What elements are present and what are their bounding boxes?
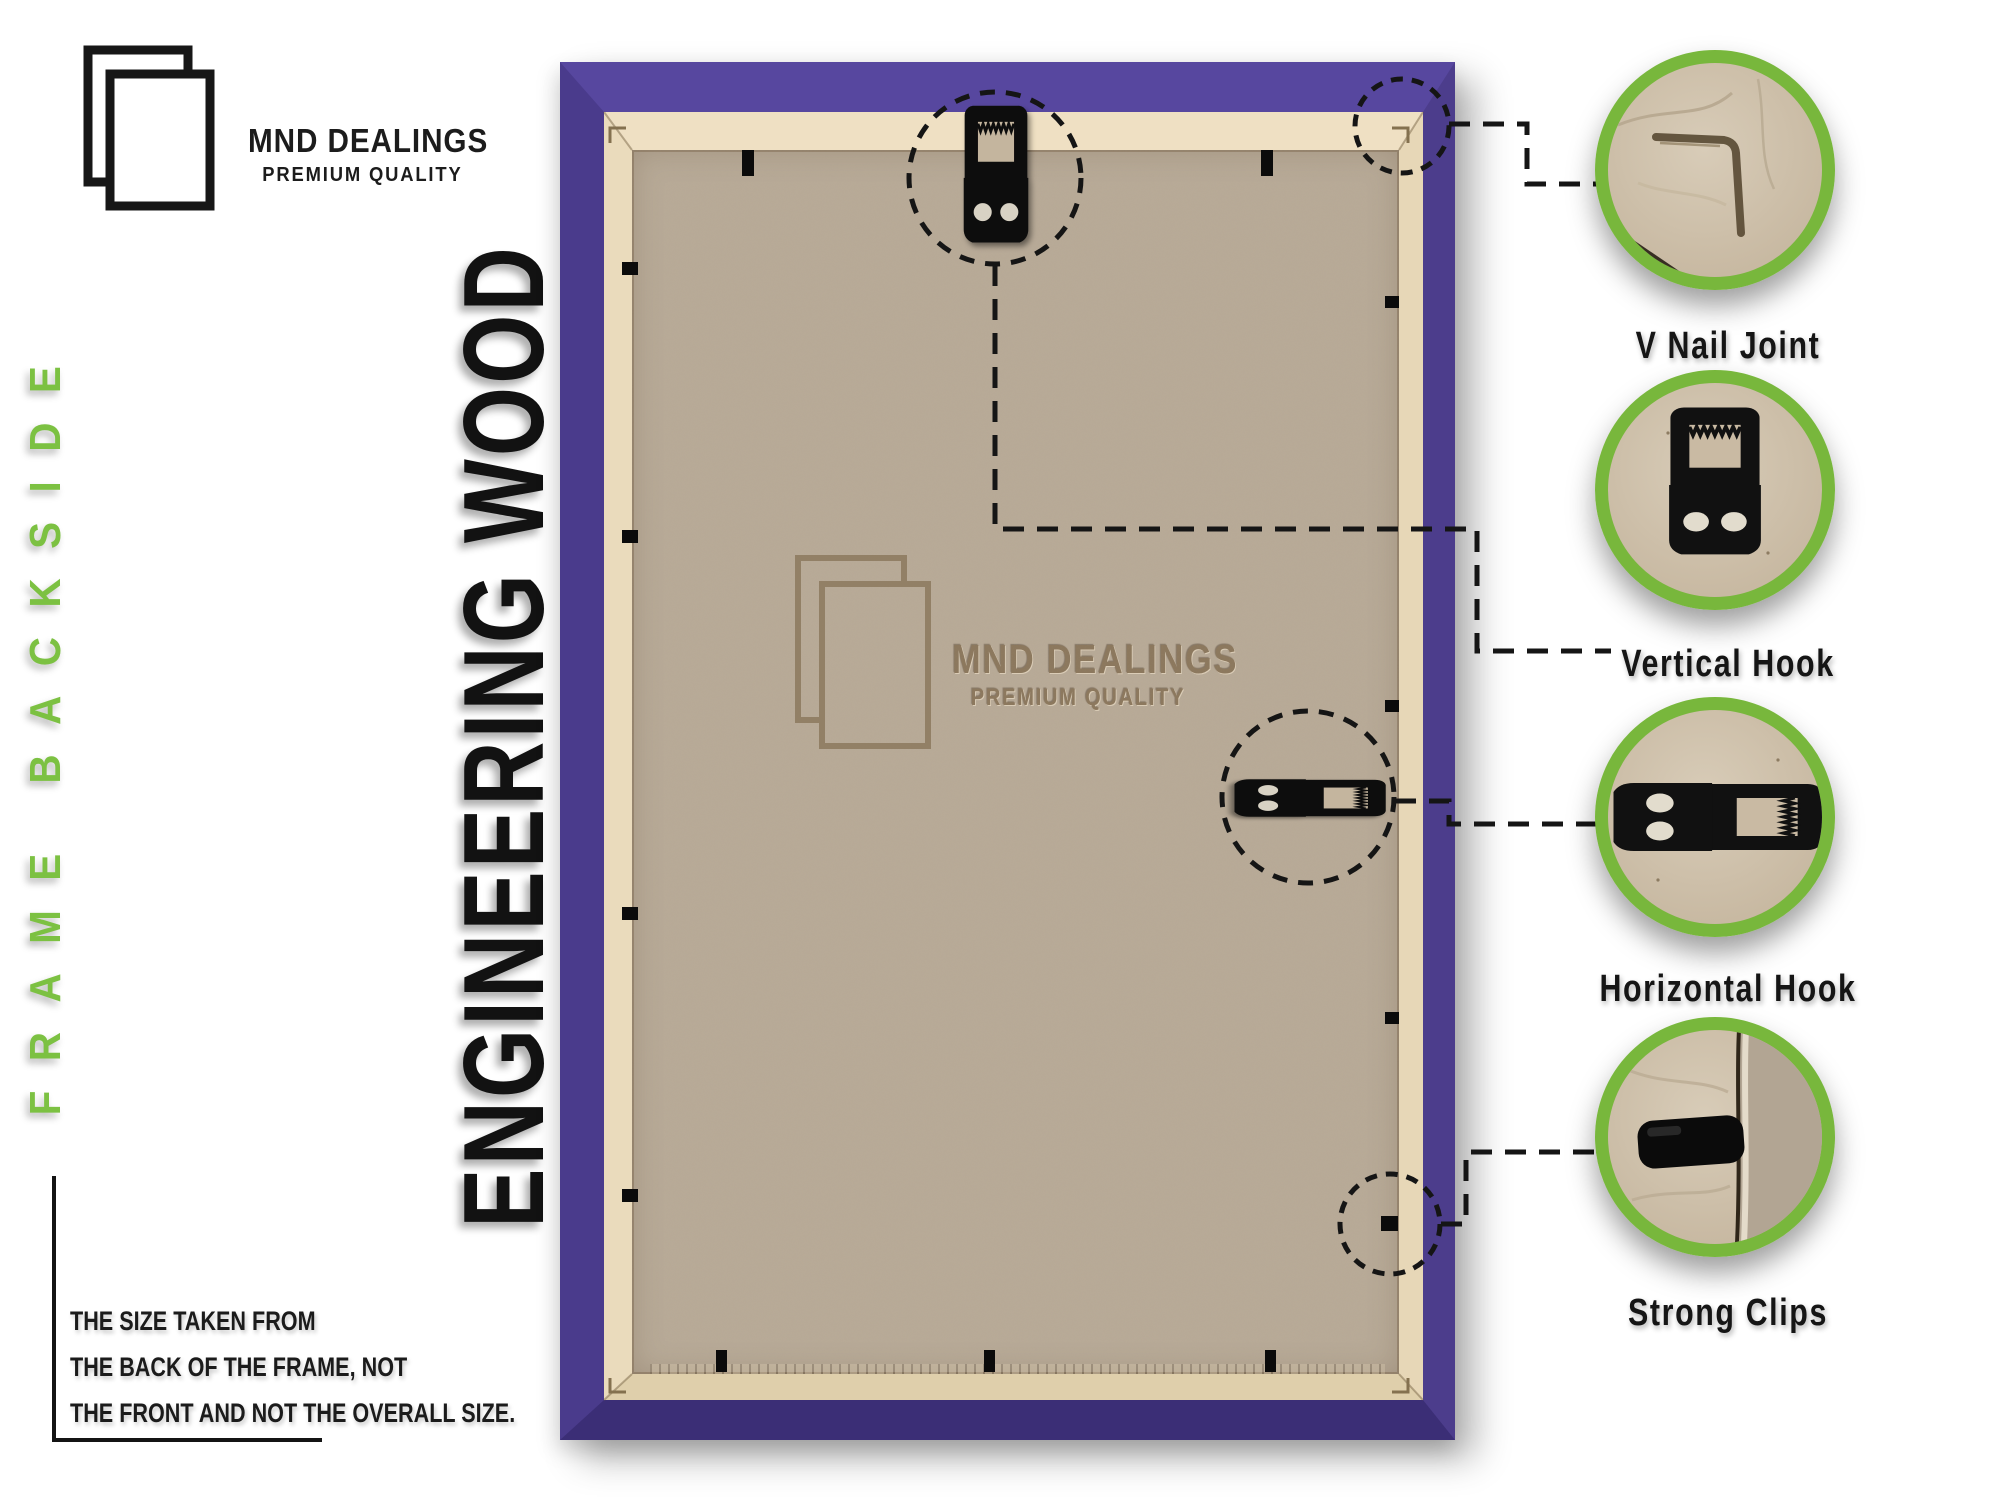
connector-v-nail-joint xyxy=(1449,124,1605,184)
callout-photo-v-nail-joint xyxy=(1595,50,1835,290)
vertical-hook-photo xyxy=(1608,383,1822,597)
bottom-edge-ticks xyxy=(650,1364,1385,1374)
callout-photo-strong-clips xyxy=(1595,1017,1835,1257)
brand-tagline: PREMIUM QUALITY xyxy=(252,164,473,187)
size-note: THE SIZE TAKEN FROM THE BACK OF THE FRAM… xyxy=(70,1298,566,1436)
watermark-name: MND DEALINGS xyxy=(952,636,1204,683)
callout-label-v-nail-joint: V Nail Joint xyxy=(1568,325,1888,368)
v-nail-joint-photo xyxy=(1608,63,1822,277)
material-label: ENGINEERING WOOD xyxy=(439,237,551,1235)
brand-name: MND DEALINGS xyxy=(248,122,488,160)
callout-photo-vertical-hook xyxy=(1595,370,1835,610)
cardboard-backboard xyxy=(632,150,1399,1374)
strong-clips-photo xyxy=(1608,1030,1822,1244)
note-line: THE FRONT AND NOT THE OVERALL SIZE. xyxy=(70,1390,566,1436)
connector-strong-clips xyxy=(1441,1152,1605,1224)
callout-label-vertical-hook: Vertical Hook xyxy=(1568,643,1888,686)
horizontal-hook-photo xyxy=(1608,710,1822,924)
callout-label-strong-clips: Strong Clips xyxy=(1568,1292,1888,1335)
watermark-tagline: PREMIUM QUALITY xyxy=(952,684,1204,712)
brand-logo-icon xyxy=(80,44,225,219)
note-line: THE BACK OF THE FRAME, NOT xyxy=(70,1344,566,1390)
side-label: FRAME BACKSIDE xyxy=(21,343,79,1116)
callout-label-horizontal-hook: Horizontal Hook xyxy=(1568,968,1888,1011)
note-line: THE SIZE TAKEN FROM xyxy=(70,1298,566,1344)
frame-backside-infographic: MND DEALINGS PREMIUM QUALITY FRAME BACKS… xyxy=(0,0,2000,1500)
callout-photo-horizontal-hook xyxy=(1595,697,1835,937)
